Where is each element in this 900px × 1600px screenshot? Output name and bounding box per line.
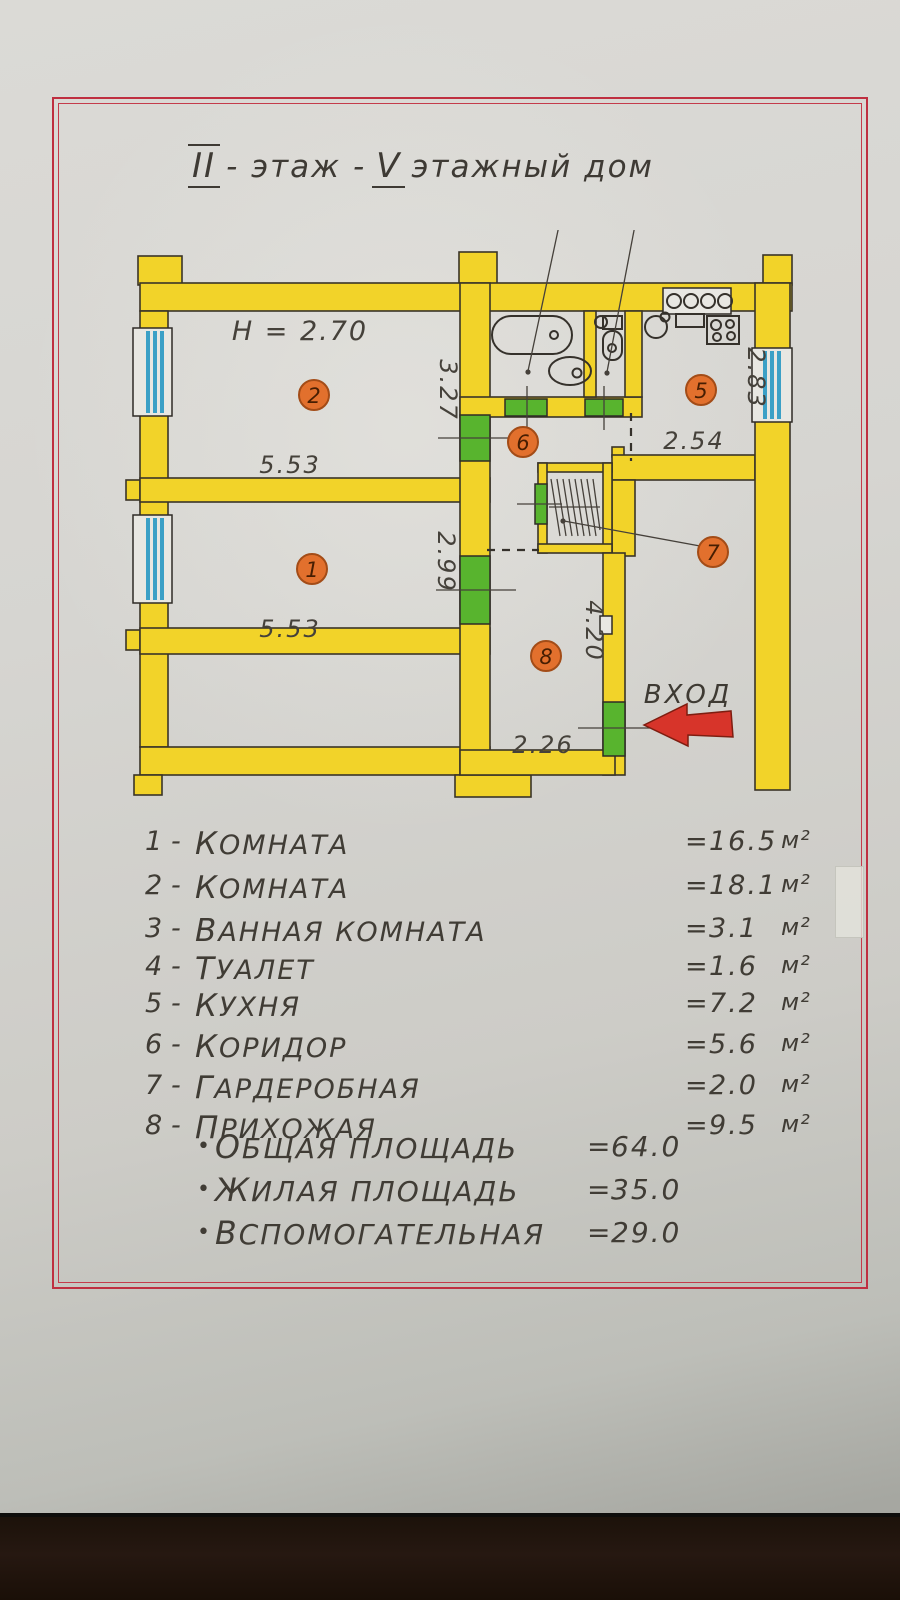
legend-num: 7 — [145, 1070, 163, 1101]
bullet-icon: • — [197, 1177, 211, 1202]
kitchen-sink-icon — [645, 313, 670, 339]
legend-equals: = — [685, 1070, 709, 1101]
legend-unit: м² — [781, 913, 811, 941]
legend-dash: - — [171, 870, 182, 901]
grille-icon — [663, 288, 732, 314]
legend-area: 1.6 — [709, 951, 758, 982]
window-room2 — [133, 328, 172, 416]
wall-bottom-left — [140, 747, 490, 775]
legend-room-name: Гардеробная — [195, 1070, 421, 1106]
marker-room-1: 1 — [297, 554, 327, 584]
wall-stub-bottom-middle — [455, 775, 531, 797]
total-value: 35.0 — [611, 1173, 681, 1206]
bullet-icon: • — [197, 1134, 211, 1159]
svg-text:6: 6 — [516, 431, 529, 455]
legend-area: 7.2 — [709, 988, 758, 1019]
wall-hall-upper — [612, 480, 635, 556]
total-row-living: • Жилая площадь = 35.0 — [197, 1173, 817, 1215]
dim-room2-depth: 3.27 — [434, 359, 462, 420]
dim-kitchen-width: 2.54 — [663, 427, 724, 455]
dim-hall-width: 2.26 — [512, 731, 573, 759]
legend-room-name: Коридор — [195, 1029, 347, 1065]
total-name: Вспомогательная — [215, 1216, 545, 1252]
total-name: Общая площадь — [215, 1130, 518, 1166]
wardrobe-rack-icon — [549, 479, 600, 536]
marker-room-6: 6 — [508, 427, 538, 457]
dim-ceiling-height: H = 2.70 — [232, 316, 368, 347]
bathtub-icon — [492, 316, 572, 354]
page-title: II- этаж -Vэтажный дом — [188, 146, 660, 186]
legend-room-name: Туалет — [195, 951, 315, 987]
table-surface — [0, 1517, 900, 1600]
legend-row-1: 1 - Комната = 16.5 м² — [145, 826, 825, 866]
total-value: 29.0 — [611, 1216, 681, 1249]
legend-num: 8 — [145, 1110, 163, 1141]
total-name: Жилая площадь — [215, 1173, 520, 1209]
legend-dash: - — [171, 951, 182, 982]
legend-room-name: Комната — [195, 826, 349, 862]
wall-middle-vertical — [460, 283, 490, 775]
svg-text:7: 7 — [706, 541, 720, 565]
window-room1 — [133, 515, 172, 603]
legend-dash: - — [171, 988, 182, 1019]
entrance-arrow-icon — [644, 704, 733, 746]
legend-equals: = — [685, 826, 709, 857]
floor-plan-drawing: H = 2.70 5.53 3.27 5.53 2.99 2.83 2.54 4… — [100, 230, 800, 830]
stove-icon — [707, 316, 739, 344]
legend-room-name: Комната — [195, 870, 349, 906]
legend-unit: м² — [781, 870, 811, 898]
legend-row-7: 7 - Гардеробная = 2.0 м² — [145, 1070, 825, 1110]
svg-text:1: 1 — [305, 558, 318, 582]
legend-num: 4 — [145, 951, 163, 982]
legend-num: 3 — [145, 913, 163, 944]
legend-area: 5.6 — [709, 1029, 758, 1060]
legend-unit: м² — [781, 826, 811, 854]
wall-stub-top-middle — [459, 252, 497, 285]
legend-equals: = — [685, 913, 709, 944]
legend-num: 6 — [145, 1029, 163, 1060]
wall-stub-left-2 — [126, 630, 140, 650]
dim-room2-width: 5.53 — [259, 451, 320, 479]
wardrobe-wall-bottom — [538, 544, 612, 553]
legend-area: 3.1 — [709, 913, 758, 944]
door-bathroom — [505, 399, 547, 416]
dim-room1-width: 5.53 — [259, 615, 320, 643]
legend-row-6: 6 - Коридор = 5.6 м² — [145, 1029, 825, 1069]
wall-stub-bottom-left — [134, 775, 162, 795]
legend-unit: м² — [781, 1029, 811, 1057]
total-equals: = — [587, 1130, 611, 1163]
kitchen-counter-icon — [676, 314, 704, 327]
legend: 1 - Комната = 16.5 м² 2 - Комната = 18.1… — [145, 818, 825, 1258]
door-entrance — [603, 702, 625, 756]
total-equals: = — [587, 1173, 611, 1206]
legend-area: 2.0 — [709, 1070, 758, 1101]
toilet-icon — [595, 316, 622, 360]
bullet-icon: • — [197, 1220, 211, 1245]
wardrobe-wall-top — [538, 463, 612, 472]
dim-hall-depth: 4.20 — [580, 600, 608, 661]
total-value: 64.0 — [611, 1130, 681, 1163]
title-floor-text: - этаж - — [220, 149, 372, 185]
legend-num: 2 — [145, 870, 163, 901]
wall-between-rooms — [140, 478, 490, 502]
legend-unit: м² — [781, 951, 811, 979]
legend-equals: = — [685, 951, 709, 982]
legend-dash: - — [171, 1029, 182, 1060]
wall-stub-top-right — [763, 255, 792, 285]
title-building-text: этажный дом — [405, 149, 660, 185]
legend-equals: = — [685, 988, 709, 1019]
legend-room-name: Ванная комната — [195, 913, 487, 949]
photo-of-floor-plan: II- этаж -Vэтажный дом — [0, 0, 900, 1600]
legend-room-name: Кухня — [195, 988, 301, 1024]
marker-room-5: 5 — [686, 375, 716, 405]
legend-equals: = — [685, 870, 709, 901]
legend-area: 18.1 — [709, 870, 777, 901]
legend-equals: = — [685, 1029, 709, 1060]
legend-row-3: 3 - Ванная комната = 3.1 м² — [145, 913, 825, 953]
legend-unit: м² — [781, 988, 811, 1016]
total-row-overall: • Общая площадь = 64.0 — [197, 1130, 817, 1172]
legend-num: 1 — [145, 826, 163, 857]
svg-text:2: 2 — [307, 384, 320, 408]
tape-patch — [835, 866, 864, 938]
legend-dash: - — [171, 1110, 182, 1141]
total-equals: = — [587, 1216, 611, 1249]
legend-unit: м² — [781, 1070, 811, 1098]
legend-row-2: 2 - Комната = 18.1 м² — [145, 870, 825, 910]
svg-text:8: 8 — [539, 645, 552, 669]
marker-room-7: 7 — [698, 537, 728, 567]
legend-num: 5 — [145, 988, 163, 1019]
wall-toilet-kitchen — [625, 311, 642, 397]
dim-kitchen-depth: 2.83 — [742, 347, 770, 408]
marker-room-2: 2 — [299, 380, 329, 410]
floor-numeral: II — [188, 144, 220, 188]
marker-room-8: 8 — [531, 641, 561, 671]
wall-stub-left-1 — [126, 480, 140, 500]
building-numeral: V — [372, 146, 405, 188]
dim-room1-depth: 2.99 — [432, 531, 460, 592]
legend-dash: - — [171, 913, 182, 944]
svg-text:5: 5 — [694, 379, 707, 403]
wardrobe-wall-right — [603, 463, 612, 553]
legend-row-4: 4 - Туалет = 1.6 м² — [145, 951, 825, 991]
total-row-auxiliary: • Вспомогательная = 29.0 — [197, 1216, 817, 1258]
legend-row-5: 5 - Кухня = 7.2 м² — [145, 988, 825, 1028]
wall-stub-top-left — [138, 256, 182, 285]
wall-kitchen-bottom — [612, 455, 755, 480]
wall-bath-toilet — [584, 311, 596, 397]
legend-dash: - — [171, 1070, 182, 1101]
legend-area: 16.5 — [709, 826, 777, 857]
legend-dash: - — [171, 826, 182, 857]
entrance-label: Вход — [644, 680, 732, 710]
